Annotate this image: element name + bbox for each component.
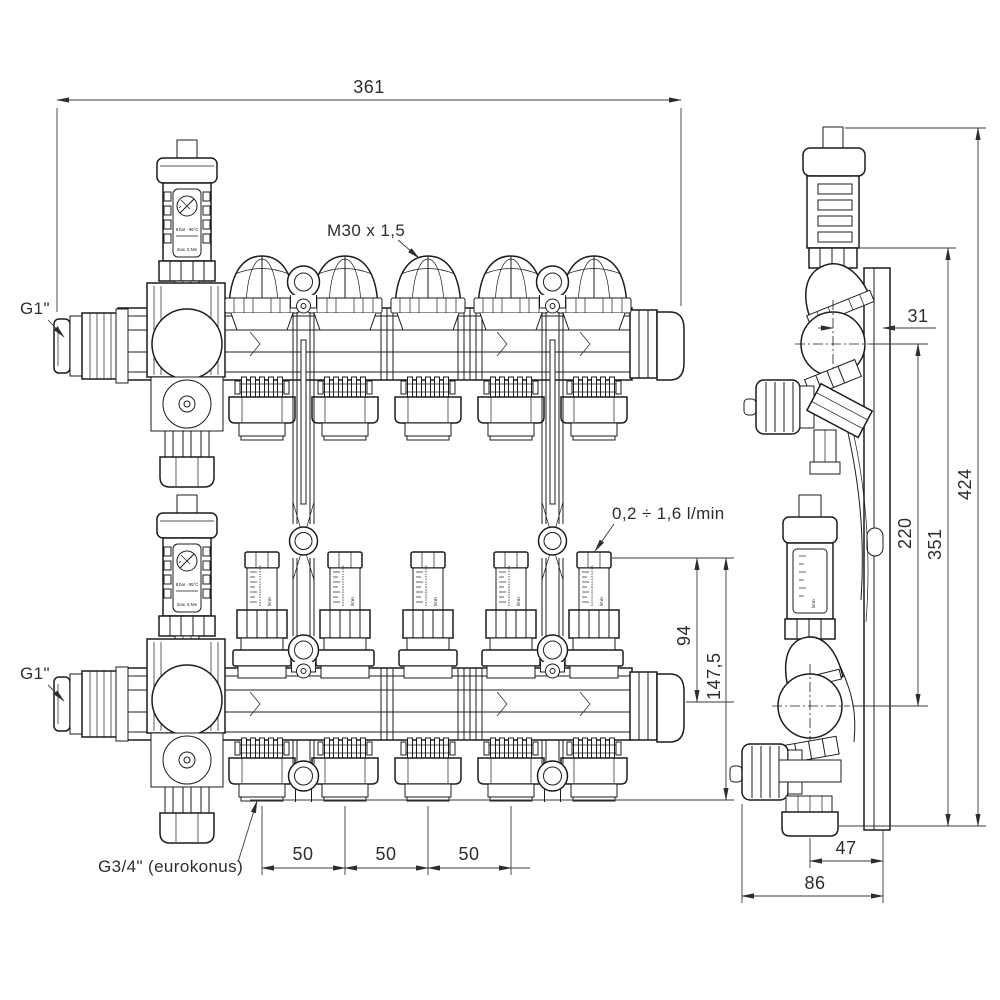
supply-drain-spout xyxy=(744,399,756,415)
technical-drawing-page: 8 bar - 95°C max. 5 Nm xyxy=(0,0,1000,1000)
front-view-supply-manifold xyxy=(54,140,684,487)
dim-valve-assembly-height-text: 147,5 xyxy=(704,652,724,700)
dim-axis-distance-text: 220 xyxy=(895,517,915,549)
dim-total-length-text: 361 xyxy=(353,77,385,97)
dim-total-depth-text: 86 xyxy=(804,873,825,893)
return-drain-spout xyxy=(730,766,742,782)
dim-pipe-axis-offset-text: 31 xyxy=(907,306,928,326)
dim-outlet-depth-text: 47 xyxy=(835,838,856,858)
dim-spacing-a-text: 50 xyxy=(292,844,313,864)
outlet-thread-text: G3/4" (eurokonus) xyxy=(98,857,243,876)
valve-thread-text: M30 x 1,5 xyxy=(327,221,405,240)
dim-bracket-height-text: 351 xyxy=(925,528,945,560)
return-outlet-nut xyxy=(782,812,838,836)
front-view-return-manifold xyxy=(54,495,684,843)
g1-top-text: G1" xyxy=(20,299,50,318)
side-return-assembly: l/min xyxy=(730,495,850,836)
dim-flowmeter-height-text: 94 xyxy=(674,625,694,646)
label-valve-thread: M30 x 1,5 xyxy=(327,221,419,258)
side-flow-unit-label: l/min xyxy=(811,598,816,608)
dimension-total-height: 424 xyxy=(838,128,986,826)
side-view: l/min xyxy=(730,127,890,836)
flow-range-text: 0,2 ÷ 1,6 l/min xyxy=(612,504,725,523)
manifold-technical-drawing: 8 bar - 95°C max. 5 Nm xyxy=(0,0,1000,1000)
dim-spacing-c-text: 50 xyxy=(458,844,479,864)
dim-spacing-b-text: 50 xyxy=(375,844,396,864)
label-flow-range: 0,2 ÷ 1,6 l/min xyxy=(595,504,725,551)
side-supply-assembly xyxy=(744,127,874,474)
g1-bottom-text: G1" xyxy=(20,664,50,683)
dimension-outlet-spacing: 50 50 50 xyxy=(262,806,530,875)
dim-total-height-text: 424 xyxy=(955,468,975,500)
